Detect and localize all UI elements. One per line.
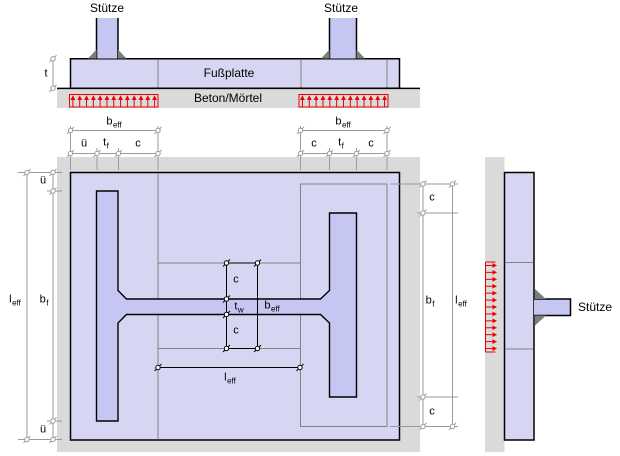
column-stub bbox=[534, 299, 571, 316]
thickness-label: t bbox=[44, 69, 47, 80]
weld-icon bbox=[321, 50, 330, 59]
dim-l-eff-bottom: leff bbox=[224, 373, 236, 384]
side-view bbox=[485, 157, 571, 452]
concrete-strip-side bbox=[485, 157, 505, 452]
dim-c-top-left: c bbox=[135, 139, 141, 150]
dim-l-eff-right: leff bbox=[455, 296, 467, 307]
base-plate-side bbox=[505, 173, 535, 441]
support-label: Beton/Mörtel bbox=[194, 92, 262, 104]
column-left bbox=[97, 18, 119, 59]
column-right bbox=[330, 18, 357, 59]
column-left-label: Stütze bbox=[90, 2, 124, 14]
weld-icon bbox=[357, 50, 366, 59]
column-right-label: Stütze bbox=[324, 2, 358, 14]
dim-b-eff-top-left: beff bbox=[106, 117, 121, 128]
dim-t-f-left: tf bbox=[103, 138, 109, 149]
weld-icon bbox=[88, 50, 97, 59]
weld-icon bbox=[118, 50, 127, 59]
dim-c-right-bottom: c bbox=[429, 407, 435, 418]
weld-icon bbox=[535, 316, 547, 327]
dim-overhang-left-bottom: ü bbox=[40, 425, 46, 436]
column-side-label: Stütze bbox=[578, 301, 612, 313]
dim-l-eff-left: leff bbox=[9, 295, 21, 306]
dim-b-f-left: bf bbox=[40, 295, 49, 306]
dim-c2-top-right: c bbox=[368, 139, 374, 150]
dim-c1-top-right: c bbox=[311, 139, 317, 150]
dim-b-eff-web: beff bbox=[264, 301, 279, 312]
base-plate-diagram: Stütze Stütze Fußplatte Beton/Mörtel t b… bbox=[0, 0, 620, 456]
dim-c-web-bottom: c bbox=[233, 326, 239, 337]
dim-c-web-top: c bbox=[233, 275, 239, 286]
dim-overhang-left-top: ü bbox=[40, 176, 46, 187]
dim-t-w: tw bbox=[234, 302, 243, 313]
weld-icon bbox=[535, 289, 547, 300]
dim-c-right-top: c bbox=[429, 193, 435, 204]
diagram-canvas bbox=[0, 0, 620, 456]
dim-overhang-top-left: ü bbox=[81, 139, 87, 150]
dim-t-f-right: tf bbox=[338, 138, 344, 149]
plate-label: Fußplatte bbox=[204, 67, 255, 79]
dim-b-f-right: bf bbox=[426, 296, 435, 307]
dim-b-eff-top-right: beff bbox=[335, 117, 350, 128]
